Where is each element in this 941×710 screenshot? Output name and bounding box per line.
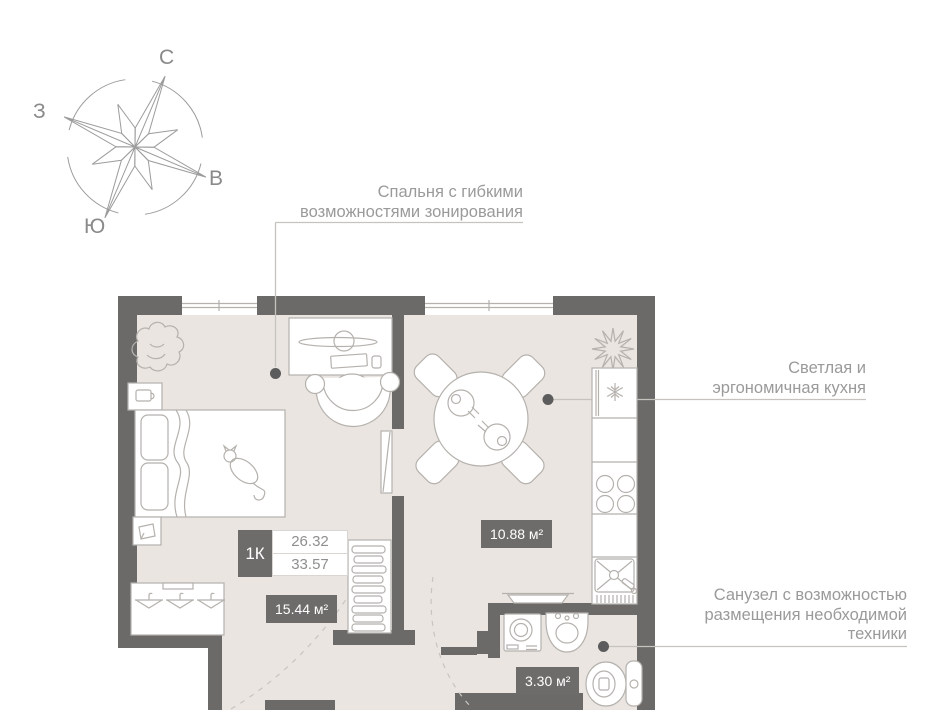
room-area-kitchen: 10.88 м² <box>481 520 552 548</box>
apartment-area-total: 33.57 <box>272 554 348 577</box>
room-area-bedroom: 15.44 м² <box>266 595 337 623</box>
annotation-bedroom-line1: Спальня с гибкими <box>300 182 523 202</box>
annotation-kitchen: Светлая и эргономичная кухня <box>712 358 866 398</box>
dining-table-icon <box>434 372 528 466</box>
bedroom-door-icon <box>381 431 392 493</box>
wardrobe-icon <box>131 583 225 635</box>
window-frame-bedroom <box>182 300 257 311</box>
bed-icon <box>135 410 285 517</box>
shelf-rack-icon <box>348 540 391 633</box>
plant-bedroom-icon <box>132 322 184 371</box>
compass-label-east: В <box>209 167 223 191</box>
plant-kitchen-icon <box>592 328 634 370</box>
room-area-bathroom: 3.30 м² <box>516 667 579 695</box>
annotation-bathroom-line3: техники <box>705 625 908 645</box>
bathroom-sink-icon <box>546 613 588 652</box>
bedside-rug-icon <box>133 517 161 545</box>
annotation-bathroom-line2: размещения необходимой <box>705 606 908 626</box>
door-swing-arc-hall <box>431 577 472 708</box>
window-frame-kitchen <box>425 300 553 311</box>
pointer-dot-bathroom <box>598 641 609 652</box>
desk-icon <box>289 318 392 375</box>
nightstand-icon <box>128 383 162 410</box>
annotation-kitchen-line1: Светлая и <box>712 358 866 378</box>
annotation-bathroom-line1: Санузел с возможностью <box>705 586 908 606</box>
floor-plan-page: С З В Ю Спальня с гибкими возможностями … <box>0 0 941 710</box>
annotation-bathroom: Санузел с возможностью размещения необхо… <box>705 586 908 645</box>
compass-label-south: Ю <box>84 215 105 239</box>
compass-rose-icon <box>53 65 218 230</box>
apartment-type-badge: 1К <box>238 530 272 577</box>
annotation-bedroom-line2: возможностями зонирования <box>300 202 523 222</box>
apartment-info-table: 1К 26.32 33.57 <box>238 530 348 577</box>
washing-machine-icon <box>504 614 541 651</box>
annotation-bedroom: Спальня с гибкими возможностями зонирова… <box>300 182 523 222</box>
compass-label-north: С <box>159 46 174 70</box>
office-chair-icon <box>306 373 400 427</box>
bathroom-door-icon <box>502 594 574 604</box>
annotation-kitchen-line2: эргономичная кухня <box>712 378 866 398</box>
apartment-area-living: 26.32 <box>272 530 348 554</box>
compass-label-west: З <box>33 100 46 124</box>
pointer-dot-bedroom <box>270 368 281 379</box>
pointer-dot-kitchen <box>543 394 554 405</box>
toilet-icon <box>586 661 642 706</box>
